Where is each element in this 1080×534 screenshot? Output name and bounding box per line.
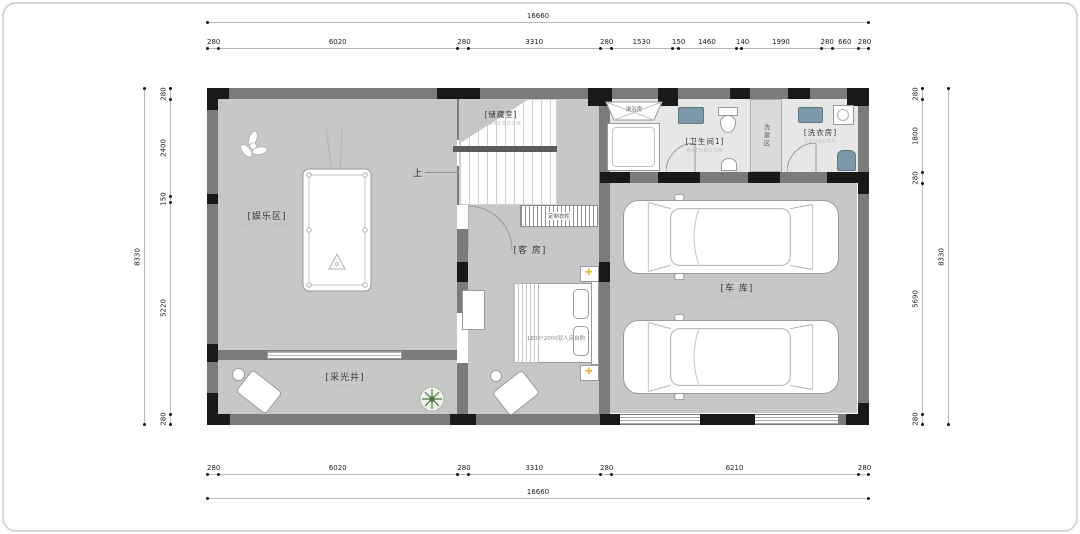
wall-right — [858, 88, 869, 425]
column — [450, 414, 476, 425]
dim-value: 280 — [821, 39, 832, 46]
dimension-segment: 6020 — [218, 36, 457, 49]
dim-value: 280 — [858, 465, 869, 472]
lightwell-window — [267, 351, 402, 359]
billiard-table — [302, 123, 372, 292]
dimension-segment: 6210 — [611, 462, 858, 475]
column — [730, 88, 750, 99]
wash-zone-label: 洗漱区 — [762, 124, 771, 148]
dim-value: 280 — [858, 39, 869, 46]
dim-value: 16660 — [207, 13, 869, 20]
dim-value: 280 — [161, 413, 168, 426]
dim-value: 280 — [161, 87, 168, 100]
floorplan: [娱乐区] ACTIVITY AREA [采光井] PORCH [储藏室] ST… — [207, 88, 869, 425]
side-table — [490, 370, 502, 382]
door-arc-bathroom — [666, 143, 696, 172]
dim-value: 1530 — [611, 39, 672, 46]
dim-value: 6020 — [218, 39, 457, 46]
dim-value: 280 — [457, 39, 468, 46]
dim-value: 280 — [913, 87, 920, 100]
wash-zone-closet: 洗漱区 — [750, 99, 782, 172]
column — [207, 194, 218, 204]
dimension-segment: 280 — [821, 36, 832, 49]
dim-value: 280 — [913, 413, 920, 426]
dim-left-total: 8330 — [132, 88, 144, 425]
column — [207, 88, 218, 110]
dim-value: 5220 — [161, 299, 168, 317]
dimension-segment: 2400 — [158, 99, 171, 196]
dimension-segment: 6020 — [218, 462, 457, 475]
plant-icon — [419, 386, 445, 412]
dimension-segment: 280 — [910, 414, 923, 425]
column — [600, 414, 620, 425]
column — [847, 88, 869, 106]
wall-top — [207, 88, 869, 99]
leader-line — [425, 172, 459, 173]
dimension-segment: 660 — [832, 36, 858, 49]
door-arc-guest — [468, 205, 513, 250]
dim-value: 280 — [207, 465, 218, 472]
dim-top-segments: 2806020280331028015301501460140199028066… — [207, 36, 869, 48]
lamp-icon: ✚ — [585, 269, 593, 278]
column — [207, 414, 230, 425]
dim-value: 1800 — [913, 127, 920, 145]
shower-label: 淋浴房 — [609, 105, 659, 113]
dimension-segment: 280 — [858, 36, 869, 49]
dimension-segment: 280 — [858, 462, 869, 475]
dimension-segment: 1530 — [611, 36, 672, 49]
column — [457, 262, 468, 282]
column — [437, 88, 480, 99]
dimension-total: 16660 — [207, 486, 869, 499]
garage-door-1 — [618, 415, 700, 424]
bidet — [721, 158, 737, 171]
side-table — [232, 368, 245, 381]
laundry-sink — [798, 107, 823, 123]
column — [599, 262, 610, 282]
dim-value: 6020 — [218, 465, 457, 472]
lamp-icon: ✚ — [585, 368, 593, 377]
washing-machine — [837, 150, 856, 171]
door-arc-laundry — [787, 143, 817, 172]
car — [622, 313, 840, 401]
dim-value: 6210 — [611, 465, 858, 472]
dim-right-segments: 28018002805690280 — [910, 88, 922, 425]
headboard — [591, 281, 599, 365]
dimension-segment: 1800 — [910, 99, 923, 172]
dim-value: 280 — [457, 465, 468, 472]
dimension-segment: 3310 — [468, 36, 600, 49]
ceiling-fan-icon — [237, 130, 269, 162]
car — [622, 193, 840, 281]
dim-value: 280 — [600, 39, 611, 46]
wardrobe-label: 定制衣柜 — [546, 212, 572, 220]
dimension-total: 8330 — [132, 88, 145, 425]
dim-value: 280 — [913, 171, 920, 184]
wall-left — [207, 88, 218, 425]
dim-top-total: 16660 — [207, 10, 869, 22]
column — [748, 172, 780, 183]
dim-bottom-segments: 280602028033102806210280 — [207, 462, 869, 474]
dimension-segment: 1990 — [741, 36, 820, 49]
bed-runner — [513, 283, 539, 363]
dim-value: 1460 — [678, 39, 736, 46]
dim-value: 2400 — [161, 139, 168, 157]
dim-value: 16660 — [207, 489, 869, 496]
dim-value: 660 — [832, 39, 858, 46]
column — [827, 172, 868, 183]
column — [788, 88, 810, 99]
dimension-total: 16660 — [207, 10, 869, 23]
column — [858, 403, 869, 425]
stair-handrail — [453, 146, 557, 152]
dimension-segment: 5220 — [158, 202, 171, 413]
dimension-segment: 280 — [158, 414, 171, 425]
pillow — [573, 289, 589, 319]
floorplan-canvas: 16660 2806020280331028015301501460140199… — [0, 0, 1080, 534]
shower-base-inner — [612, 127, 655, 167]
dimension-segment: 1460 — [678, 36, 736, 49]
dim-value: 5690 — [913, 290, 920, 308]
column — [207, 344, 218, 362]
dim-value: 280 — [207, 39, 218, 46]
stairs-up-label: 上 — [413, 166, 422, 179]
dimension-total: 8330 — [936, 88, 949, 425]
dimension-segment: 5690 — [910, 183, 923, 413]
dim-bottom-total: 16660 — [207, 486, 869, 498]
dim-right-total: 8330 — [936, 88, 948, 425]
cabinet — [462, 290, 485, 330]
dim-value: 1990 — [741, 39, 820, 46]
column — [600, 172, 630, 183]
dim-value: 3310 — [468, 465, 600, 472]
dim-value: 280 — [600, 465, 611, 472]
bed-note: 1800*2000双人床自购 — [513, 334, 599, 342]
dimension-segment: 3310 — [468, 462, 600, 475]
column — [658, 172, 700, 183]
wardrobe: 定制衣柜 — [520, 205, 598, 227]
garage-door-2 — [755, 415, 838, 424]
dim-value: 8330 — [939, 248, 946, 266]
column — [700, 414, 755, 425]
dim-value: 8330 — [135, 248, 142, 266]
washer-drum — [837, 109, 849, 121]
bathroom-sink — [678, 107, 704, 124]
door-opening-hall — [457, 205, 468, 229]
dim-left-segments: 28024001505220280 — [158, 88, 170, 425]
dim-value: 3310 — [468, 39, 600, 46]
